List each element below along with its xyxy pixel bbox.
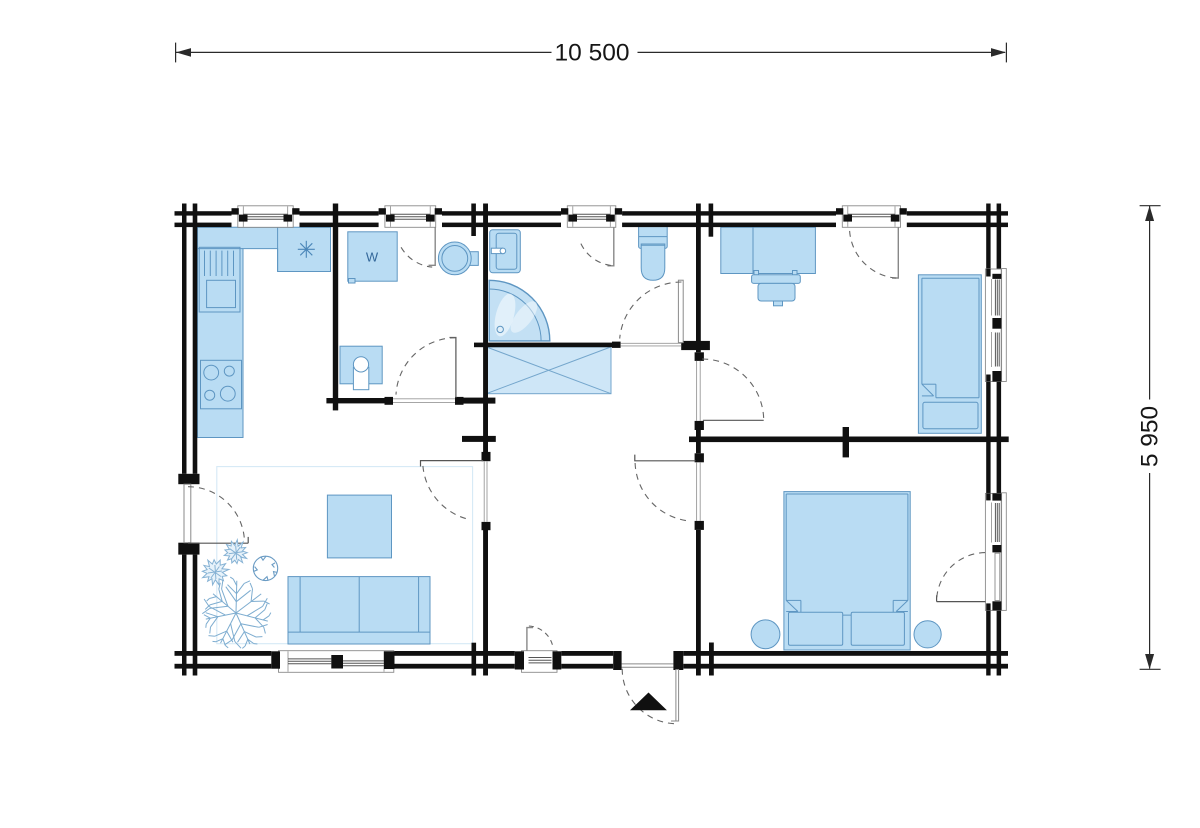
svg-text:10 500: 10 500 — [555, 40, 630, 67]
svg-text:5 950: 5 950 — [1137, 406, 1164, 467]
svg-text:W: W — [366, 250, 379, 265]
